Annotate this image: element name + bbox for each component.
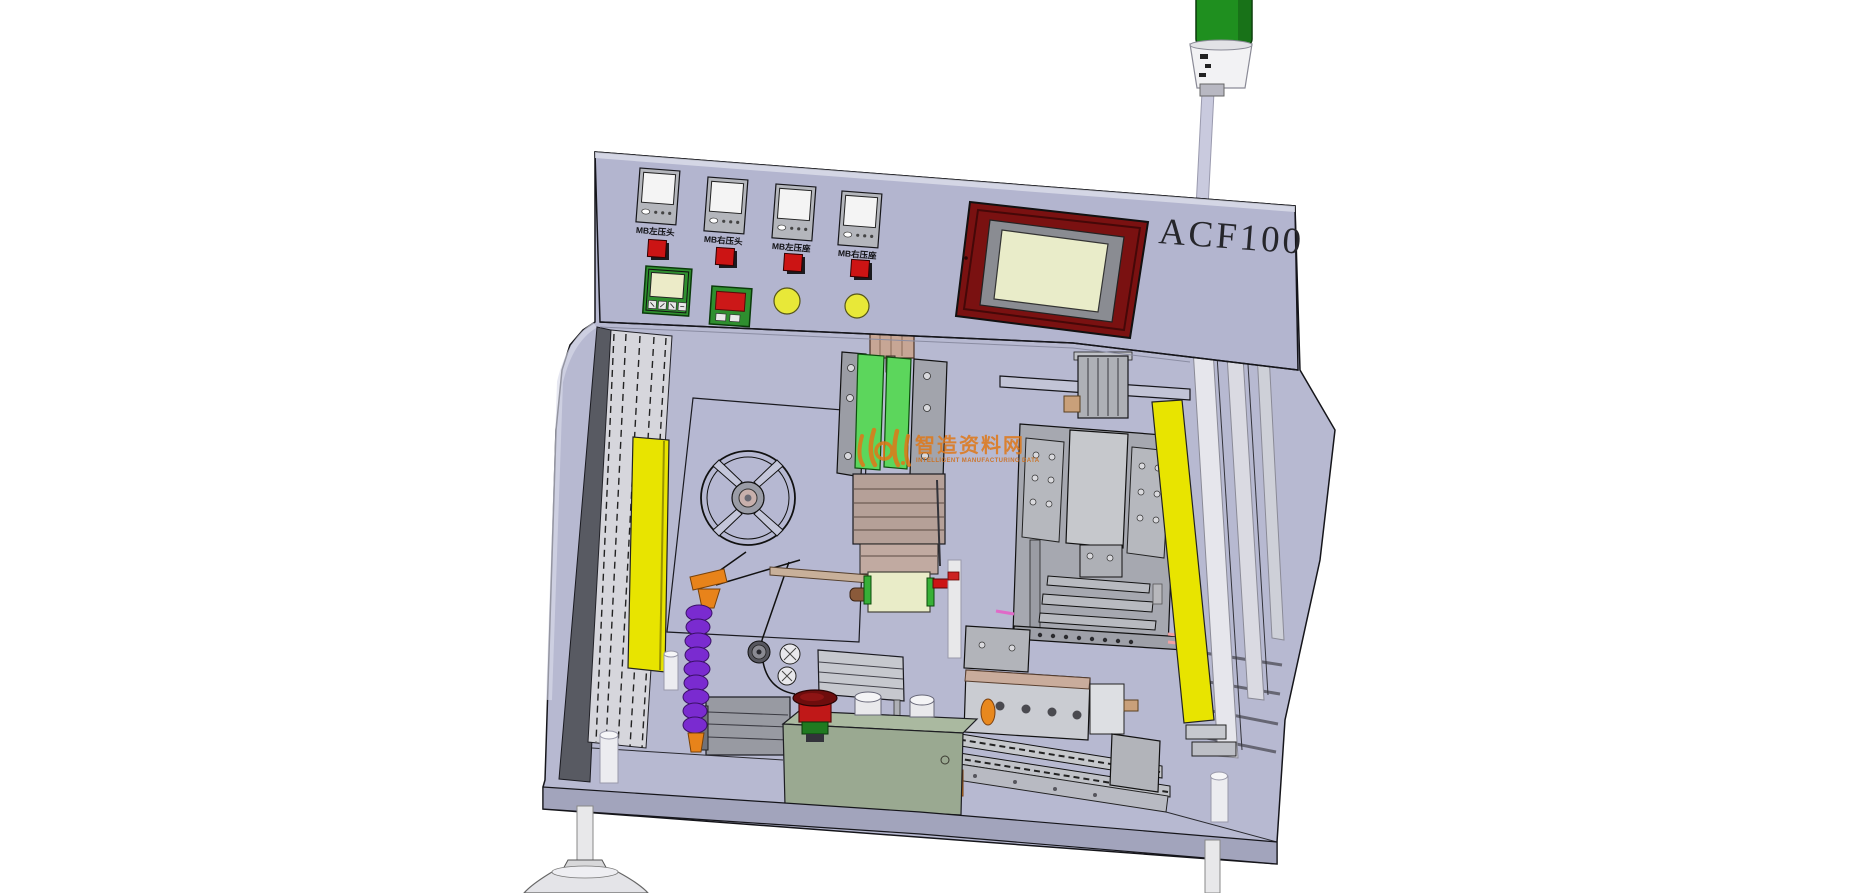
tower-base-rim [1190,40,1252,50]
watermark-subtitle: INTELLIGENT MANUFACTURING DATA [916,458,1040,464]
hmi-screw [964,256,968,260]
tower-connector [1200,84,1224,96]
tan-tab [1124,700,1138,711]
indicator-red [715,247,734,265]
feeder-motor-box [698,697,790,755]
rail-end-block [1110,734,1160,792]
hmi-screen [994,230,1108,312]
curtain-base-block [1186,725,1226,739]
temp-controller-2: MB右压头 [703,177,748,247]
inner-post [1211,776,1228,822]
tower-mark [1205,64,1211,68]
temp-controller-4: MB右压座 [837,191,882,261]
hmi-panel [956,202,1148,338]
indicator-red [647,239,666,257]
small-block [964,626,1030,672]
counter-screen [650,272,685,298]
red-display-device [709,286,752,327]
yellow-button [774,288,800,314]
cad-render-canvas: ACF100 MB左压头 MB右压头 MB左压座 [0,0,1860,893]
tower-lens-shade [1238,0,1251,42]
temp-controller-3: MB左压座 [771,184,816,254]
tower-mark [1199,73,1206,77]
bowl-inner [800,693,824,701]
tape-pulley-axle [757,650,762,655]
stage-small-cylinder [1153,584,1162,604]
indicator-red [783,253,802,271]
orange-roller [981,699,995,725]
stage-post-red-tip [948,572,959,580]
stage-ladder-plates [1039,576,1156,630]
inner-post [600,735,618,783]
right-leg [1205,840,1220,893]
hose-tip-orange [688,733,704,752]
bowl-foot [806,734,824,742]
tower-pole [1196,92,1214,208]
stage-slider-block [1080,545,1122,577]
stage-support [1030,540,1040,628]
stage-column [1078,356,1128,418]
display-screen-red [715,291,745,311]
left-leg [524,806,648,893]
curtain-base-block [1192,742,1236,756]
head-clip-green [864,576,871,604]
signal-tower [1190,0,1252,208]
temp-controller-1: MB左压头 [635,168,680,238]
stage-fitting-tan [1064,396,1080,412]
head-stack-upper [853,474,945,544]
stage-slider [1066,430,1128,548]
white-sub-block [1090,684,1124,734]
head-cream-block [868,572,930,612]
head-stack-lower [860,544,938,574]
inner-post [664,654,678,690]
reel-axle [745,495,752,502]
tower-base [1190,44,1252,88]
controller-screen [641,172,675,204]
counter-device [643,266,692,316]
display-button [716,313,726,321]
tower-mark [1200,54,1208,59]
bowl-base-green [802,722,828,734]
display-button [730,314,740,322]
indicator-red [850,259,869,277]
yellow-button [845,294,869,318]
watermark-title: 智造资料网 [915,433,1025,457]
stage-subplate-left [1022,438,1064,542]
controller-screen [709,181,743,213]
controller-screen [777,188,811,220]
controller-screen [843,195,877,227]
